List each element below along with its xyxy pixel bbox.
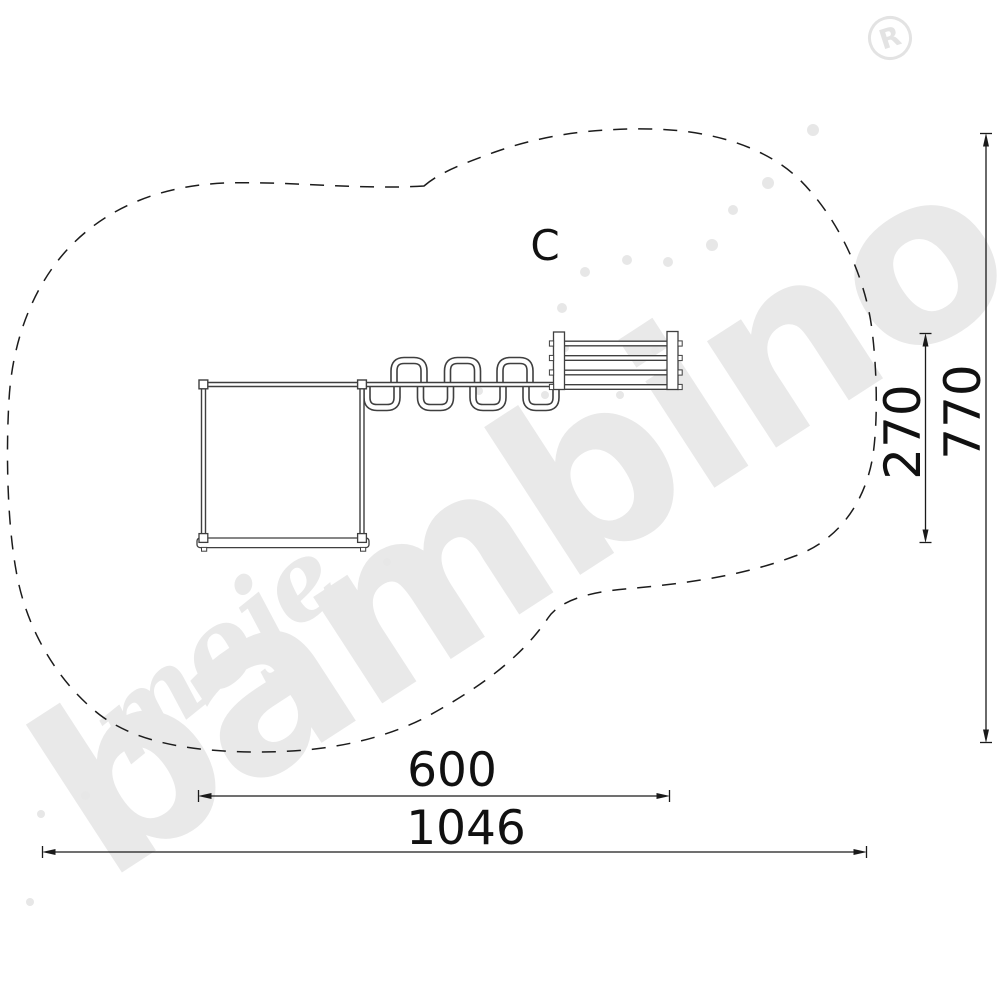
safety-zone-outline [7, 129, 876, 752]
dimension-value-item-depth: 270 [877, 352, 929, 512]
frame-corner-post [358, 380, 367, 389]
climbing-frame-square [197, 380, 369, 551]
dimension-value-zone-depth: 770 [937, 332, 989, 492]
ladder-right-post [667, 332, 678, 390]
technical-drawing-canvas: bambino moje R [0, 0, 1000, 1000]
frame-corner-post [199, 534, 208, 543]
snake-balance-beam [206, 361, 560, 408]
ladder-left-post [554, 332, 565, 390]
horizontal-ladder [549, 332, 682, 390]
dimension-value-item-length: 600 [352, 746, 552, 796]
dimension-value-zone-length: 1046 [346, 804, 586, 854]
item-label-c: C [521, 221, 569, 271]
frame-corner-post [358, 534, 367, 543]
frame-bottom-bar [197, 538, 369, 548]
frame-corner-post [199, 380, 208, 389]
